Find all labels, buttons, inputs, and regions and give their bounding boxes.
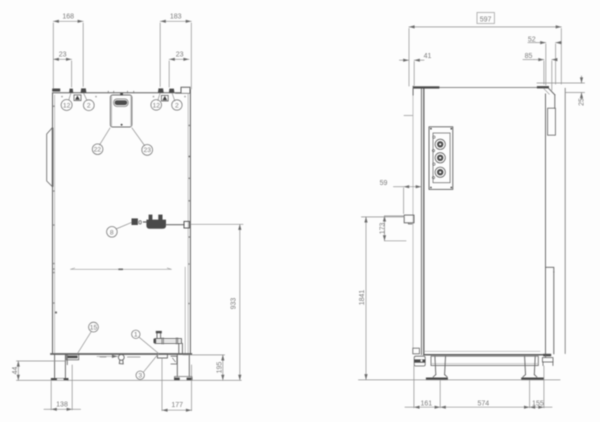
- svg-text:168: 168: [62, 14, 74, 21]
- svg-text:173: 173: [380, 222, 387, 234]
- svg-text:2: 2: [175, 102, 179, 109]
- svg-text:25: 25: [579, 98, 586, 106]
- svg-text:177: 177: [171, 402, 183, 409]
- svg-text:3: 3: [138, 373, 142, 380]
- svg-text:23: 23: [143, 147, 151, 154]
- svg-text:1841: 1841: [359, 290, 366, 306]
- svg-text:41: 41: [424, 53, 432, 60]
- svg-text:597: 597: [480, 16, 492, 23]
- svg-text:2: 2: [87, 103, 91, 110]
- svg-text:52: 52: [528, 36, 536, 43]
- svg-text:155: 155: [532, 400, 544, 407]
- svg-text:12: 12: [152, 102, 160, 109]
- svg-text:44: 44: [12, 367, 19, 375]
- svg-text:12: 12: [63, 102, 71, 109]
- svg-text:85: 85: [525, 53, 533, 60]
- svg-text:138: 138: [56, 402, 68, 409]
- svg-text:195: 195: [217, 362, 224, 374]
- svg-text:183: 183: [170, 14, 182, 21]
- svg-text:574: 574: [477, 400, 489, 407]
- svg-text:15: 15: [90, 324, 98, 331]
- svg-text:933: 933: [231, 298, 238, 310]
- svg-text:161: 161: [420, 400, 432, 407]
- svg-text:8: 8: [110, 229, 114, 236]
- svg-text:1: 1: [134, 332, 138, 339]
- svg-text:59: 59: [380, 180, 388, 187]
- svg-text:22: 22: [94, 146, 102, 153]
- svg-text:23: 23: [59, 52, 67, 59]
- svg-text:23: 23: [176, 52, 184, 59]
